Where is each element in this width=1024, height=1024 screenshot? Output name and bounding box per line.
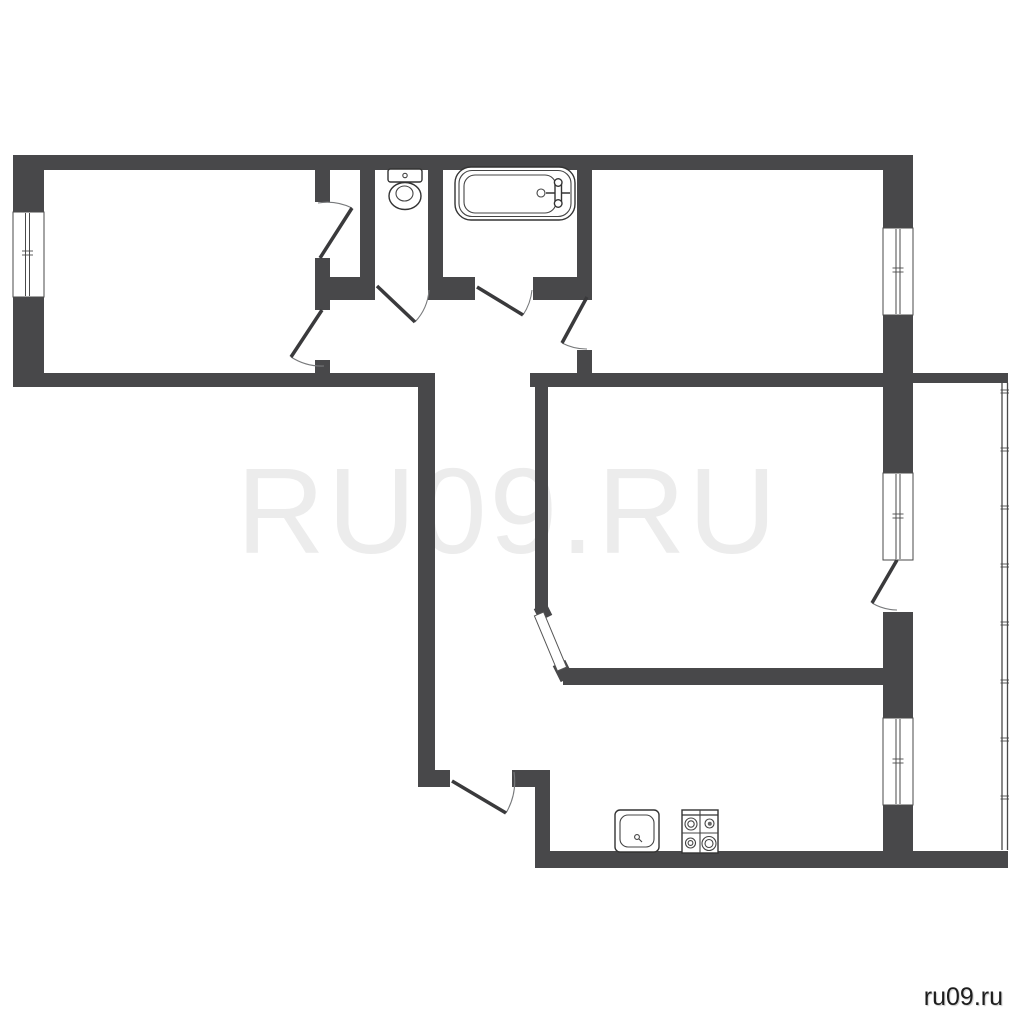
door-bath-arc <box>523 290 532 315</box>
wall-right-2 <box>883 315 913 473</box>
stove-burner-dot <box>708 822 712 826</box>
wall-hall-bottom-b <box>512 770 550 787</box>
door-wc-leaf <box>377 286 415 322</box>
wall-kitchen-left <box>535 787 550 851</box>
toilet-tank <box>388 169 422 182</box>
bathtub-tap-knob <box>554 200 562 208</box>
wall-balcony-top <box>913 373 1008 383</box>
window-kitchen <box>883 718 913 805</box>
window-room1 <box>13 212 44 297</box>
door-wc-arc <box>415 290 429 322</box>
floor-plan-page: RU09.RU ru09.ru <box>0 0 1024 1024</box>
wall-kitchen-bottom <box>535 851 1008 868</box>
door-room2-arc <box>562 343 587 349</box>
wall-hall-top-a <box>315 277 375 300</box>
window-livingroom <box>883 473 913 560</box>
wall-right-3 <box>883 612 913 718</box>
door-room1-leaf <box>291 310 322 357</box>
door-closet-leaf <box>320 208 352 258</box>
door-closet-arc <box>318 202 352 208</box>
door-livingroom-diagonal <box>534 612 566 671</box>
wall-wc-left <box>360 170 375 277</box>
door-entry-leaf <box>452 781 506 813</box>
wall-room1-bottom <box>13 373 435 387</box>
wall-hall-left <box>418 387 435 770</box>
wall-wc-right <box>428 170 443 277</box>
door-room2-leaf <box>562 297 587 343</box>
door-balcony-leaf <box>872 560 897 603</box>
wall-hall-top-b <box>428 277 475 300</box>
floor-plan-svg <box>0 0 1024 1024</box>
wall-livingroom-left <box>535 387 548 612</box>
wall-left-upper <box>13 155 44 212</box>
wall-right-1 <box>883 155 913 228</box>
wall-livingroom-bottom <box>563 668 883 685</box>
wall-livingroom-top <box>530 373 883 387</box>
kitchen-sink <box>615 810 659 852</box>
wall-hall-bottom-a <box>418 770 450 787</box>
window-room2 <box>883 228 913 315</box>
site-url-label: ru09.ru <box>924 985 1003 1010</box>
wall-room2-left-b <box>577 350 592 373</box>
wall-room1-right-a <box>315 170 330 202</box>
door-bath-leaf <box>477 287 523 315</box>
wall-room2-left-a <box>577 170 592 295</box>
bathtub-tap-knob <box>554 179 562 187</box>
wall-top <box>13 155 913 170</box>
door-balcony-arc <box>872 603 897 610</box>
